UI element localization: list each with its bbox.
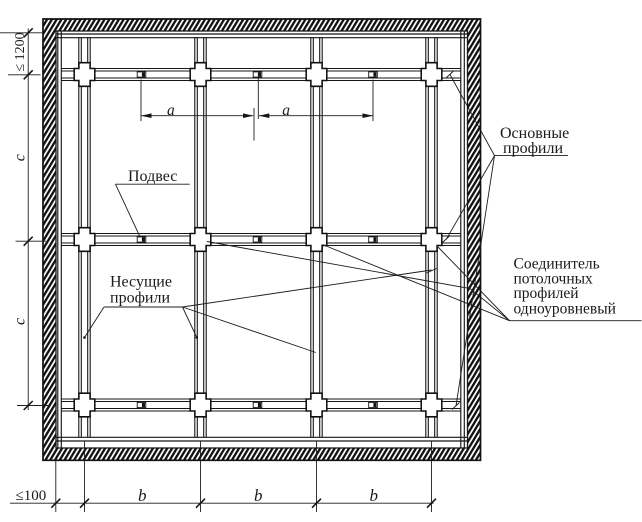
svg-text:≤100: ≤100 xyxy=(16,488,47,504)
svg-text:профили: профили xyxy=(503,140,563,157)
svg-text:Несущие: Несущие xyxy=(110,274,172,291)
svg-text:одноуровневый: одноуровневый xyxy=(514,300,616,317)
svg-text:≤ 1200: ≤ 1200 xyxy=(13,32,28,71)
svg-text:a: a xyxy=(282,102,290,119)
svg-text:профили: профили xyxy=(110,290,170,307)
svg-text:b: b xyxy=(254,486,263,505)
svg-text:c: c xyxy=(12,318,29,325)
svg-text:a: a xyxy=(167,102,175,119)
svg-text:c: c xyxy=(11,154,28,161)
svg-text:b: b xyxy=(370,486,379,505)
svg-text:Подвес: Подвес xyxy=(128,168,177,185)
svg-text:b: b xyxy=(138,486,147,505)
